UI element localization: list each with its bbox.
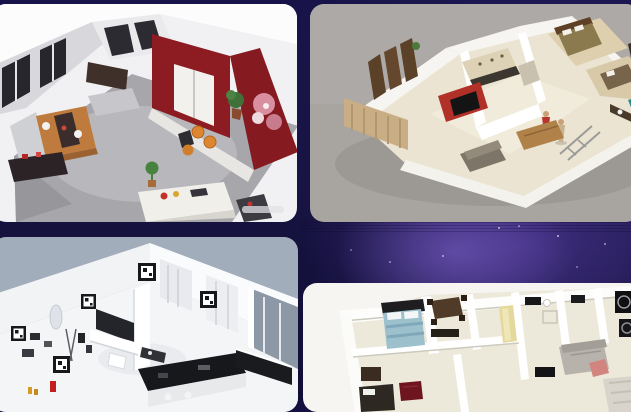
floor-plan-card-4[interactable] <box>303 283 631 412</box>
floor-plan-card-1[interactable] <box>0 4 297 222</box>
floor-plan-3-illustration <box>0 237 298 412</box>
floor-plan-card-2[interactable] <box>310 4 631 222</box>
floor-plan-2-illustration <box>310 4 631 222</box>
bedroom-blue-bed <box>381 299 425 349</box>
background-stars <box>0 0 2 2</box>
floor-plan-4-illustration <box>303 283 631 412</box>
floor-plan-card-3[interactable] <box>0 237 298 412</box>
floor-plan-1-illustration <box>0 4 297 222</box>
app-screen: { "screen": { "name": "3d-floor-plan-gal… <box>0 0 631 400</box>
fire-extinguisher <box>50 381 56 392</box>
video-scanlines <box>300 222 631 234</box>
watermark <box>242 206 284 213</box>
